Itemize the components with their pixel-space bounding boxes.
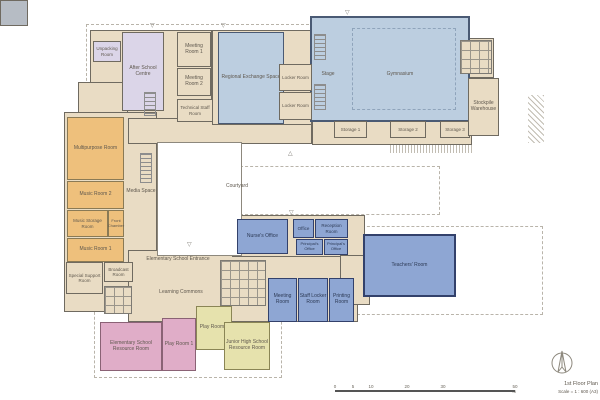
entrance-marker-6: ▽: [289, 210, 294, 216]
learning-commons-label: Learning Commons: [146, 290, 216, 296]
room-technical-staff: Technical Staff Room: [177, 99, 213, 122]
broadcast-label: Broadcast Room: [105, 267, 132, 277]
office-label: Office: [298, 226, 310, 231]
north-arrow-icon: [549, 349, 575, 375]
room-locker-a: Locker Room: [279, 64, 312, 91]
room-broadcast: Broadcast Room: [104, 262, 133, 282]
room-front-chamber: Front Chamber: [108, 210, 124, 237]
locker-a-label: Locker Room: [282, 75, 309, 80]
slope-hatching: [528, 95, 544, 143]
storage-2-label: Storage 2: [398, 127, 418, 132]
jhs-resource-label: Junior High School Resource Room: [225, 340, 269, 352]
after-school-label: After School Centre: [123, 66, 163, 78]
room-stockpile-warehouse: Stockpile Warehouse: [468, 78, 499, 136]
room-meeting: Meeting Room: [268, 278, 297, 322]
technical-staff-label: Technical Staff Room: [178, 105, 212, 115]
terrace-dashed: [240, 166, 440, 215]
entrance-marker-5: ▽: [187, 242, 192, 248]
scale-bar-segments: [335, 390, 515, 392]
room-special-support: Special Support Room: [66, 262, 103, 294]
room-reception: Reception Room: [315, 219, 348, 238]
room-music-storage: Music Storage Room: [67, 210, 108, 237]
stage-stairs-2: [314, 84, 326, 110]
room-principal-1: Principal's Office: [296, 239, 323, 255]
entrance-marker-4: △: [288, 151, 293, 157]
entry-stairs: [144, 92, 156, 116]
locker-b-label: Locker Room: [282, 103, 309, 108]
kitchen-equipment: [460, 40, 492, 74]
regional-exchange-label: Regional Exchange Space: [222, 75, 281, 81]
stage-label: Stage: [314, 72, 342, 78]
meeting-1-label: Meeting Room 1: [178, 44, 210, 56]
scale-bar: 0 5 10 20 30 50 m: [335, 384, 517, 394]
play-1-label: Play Room 1: [165, 342, 194, 348]
scale-bar-ticks: 0 5 10 20 30 50 m: [335, 384, 517, 389]
elem-resource-label: Elementary School Resource Room: [101, 341, 161, 353]
meeting-2-label: Meeting Room 2: [178, 76, 210, 88]
principal-1-label: Principal's Office: [297, 242, 322, 251]
printing-label: Printing Room: [330, 294, 353, 306]
floor-plan: Courtyard Stage Gymnasium Regional Excha…: [0, 0, 600, 400]
room-storage-1: Storage 1: [334, 121, 367, 138]
courtyard-label: Courtyard: [212, 184, 262, 190]
entrance-label: Elementary School Entrance: [146, 257, 210, 263]
scale-tick-10: 10: [368, 384, 373, 389]
room-regional-exchange: Regional Exchange Space: [218, 32, 284, 124]
fence-hatching: [390, 145, 472, 153]
media-space-label: Media Space: [126, 189, 156, 195]
gymnasium-label: Gymnasium: [375, 72, 425, 78]
room-music-2: Music Room 2: [67, 181, 124, 209]
gym-court-outline: [352, 28, 456, 110]
music-storage-label: Music Storage Room: [68, 218, 107, 228]
room-meeting-2: Meeting Room 2: [177, 68, 211, 96]
room-after-school: After School Centre: [122, 32, 164, 111]
entrance-marker-3: ▽: [345, 10, 350, 16]
courtyard-area: [157, 142, 242, 256]
plan-title: 1st Floor Plan: [518, 381, 598, 387]
storage-1-label: Storage 1: [341, 127, 361, 132]
principal-2-label: Principal's Office: [325, 242, 347, 251]
scale-tick-30: 30: [440, 384, 445, 389]
music-1-label: Music Room 1: [80, 247, 112, 253]
room-principal-2: Principal's Office: [324, 239, 348, 255]
scale-tick-50: 50 m: [512, 384, 517, 394]
room-nurses-office: Nurse's Office: [237, 219, 288, 254]
room-locker-b: Locker Room: [279, 92, 312, 120]
room-meeting-1: Meeting Room 1: [177, 32, 211, 67]
scale-tick-5: 5: [352, 384, 355, 389]
nurses-office-label: Nurse's Office: [247, 234, 278, 240]
stockpile-label: Stockpile Warehouse: [469, 101, 498, 113]
multipurpose-label: Multipurpose Room: [74, 146, 117, 152]
front-chamber-label: Front Chamber: [108, 219, 124, 228]
room-teachers: Teachers' Room: [363, 234, 456, 297]
meeting-room-label: Meeting Room: [269, 294, 296, 306]
room-play-1: Play Room 1: [162, 318, 196, 371]
staff-locker-label: Staff Locker Room: [299, 294, 327, 306]
room-music-1: Music Room 1: [67, 238, 124, 262]
room-multipurpose: Multipurpose Room: [67, 117, 124, 180]
room-unpacking: Unpacking Room: [93, 41, 121, 62]
scale-tick-20: 20: [404, 384, 409, 389]
reception-label: Reception Room: [316, 223, 347, 233]
room-storage-2: Storage 2: [390, 121, 426, 138]
room-staff-locker: Staff Locker Room: [298, 278, 328, 322]
room-elem-resource: Elementary School Resource Room: [100, 322, 162, 371]
room-jhs-resource: Junior High School Resource Room: [224, 322, 270, 370]
music-2-label: Music Room 2: [80, 192, 112, 198]
elevator-core: [0, 0, 28, 26]
unpacking-label: Unpacking Room: [94, 46, 120, 56]
stage-stairs: [314, 34, 326, 60]
scale-tick-0: 0: [334, 384, 337, 389]
special-support-label: Special Support Room: [67, 273, 102, 283]
room-storage-3: Storage 3: [440, 121, 470, 138]
plan-scale-note: Scale = 1 : 600 (A3): [508, 389, 598, 394]
central-service-core: [220, 260, 266, 306]
room-office: Office: [293, 219, 314, 238]
room-printing: Printing Room: [329, 278, 354, 322]
entrance-marker-1: ▽: [150, 23, 155, 29]
storage-3-label: Storage 3: [445, 127, 465, 132]
west-service-core: [104, 286, 132, 314]
media-stairs: [140, 153, 152, 183]
teachers-room-label: Teachers' Room: [392, 263, 428, 269]
entrance-marker-2: ▽: [221, 23, 226, 29]
